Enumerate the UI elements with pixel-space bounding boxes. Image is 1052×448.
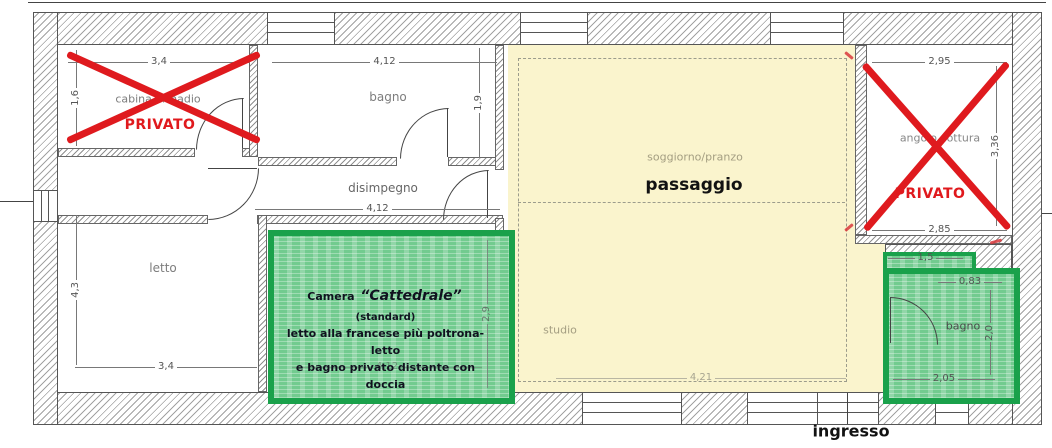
partition-bagno-bottom-left bbox=[258, 157, 397, 166]
window-left bbox=[34, 190, 57, 222]
entry-door-opening bbox=[817, 393, 879, 424]
scan-top-line bbox=[28, 2, 1046, 3]
dim-bagno-small-height: 2,0 bbox=[984, 290, 996, 375]
dim-bagno-width: 4,12 bbox=[272, 56, 497, 68]
dim-bagno-small-width: 2,05 bbox=[893, 373, 995, 385]
dim-letto-width: 3,4 bbox=[75, 361, 257, 373]
room-label-letto: letto bbox=[149, 261, 176, 275]
window-bottom-1 bbox=[582, 393, 682, 424]
camera-cattedrale-note: Camera “Cattedrale” (standard) letto all… bbox=[283, 286, 488, 393]
window-top-2 bbox=[520, 13, 588, 44]
camera-note-line1: Camera “Cattedrale” (standard) bbox=[283, 286, 488, 325]
dim-disimpegno-width: 4,12 bbox=[255, 203, 500, 215]
room-label-studio: studio bbox=[543, 324, 577, 337]
partition-cottura-left bbox=[855, 45, 867, 235]
annotation-privato-left: PRIVATO bbox=[125, 117, 196, 133]
dim-bagno-small-notch-width: 1,5 bbox=[888, 252, 963, 264]
window-top-1 bbox=[267, 13, 335, 44]
room-label-disimpegno: disimpegno bbox=[348, 181, 418, 195]
room-label-bagno-top: bagno bbox=[369, 90, 407, 104]
camera-note-line2: letto alla francese più poltrona-letto bbox=[283, 325, 488, 359]
partition-cottura-bottom bbox=[855, 235, 1012, 244]
right-sill-line bbox=[1042, 213, 1052, 214]
floor-plan: 3,4 1,6 4,12 1,9 4,12 3,4 4,3 4,12 2,9 2… bbox=[0, 0, 1052, 448]
dim-cottura-width-bottom: 2,85 bbox=[872, 224, 1007, 236]
annotation-passaggio: passaggio bbox=[645, 175, 742, 195]
partition-cabina-bottom-left bbox=[58, 148, 195, 157]
passage-dashed-midline bbox=[518, 202, 845, 203]
dim-bagno-small-offset: 0,83 bbox=[938, 276, 1002, 288]
dim-bagno-height: 1,9 bbox=[473, 48, 485, 158]
door-arc-bagno bbox=[400, 108, 449, 159]
window-bottom-2 bbox=[747, 393, 819, 424]
passage-highlight-corridor bbox=[855, 244, 885, 392]
room-label-soggiorno: soggiorno/pranzo bbox=[647, 151, 743, 164]
annotation-privato-right: PRIVATO bbox=[895, 186, 966, 202]
annotation-ingresso: ingresso bbox=[812, 422, 889, 441]
room-label-bagno-small: bagno bbox=[946, 320, 980, 333]
dim-studio-width: 4,21 bbox=[556, 372, 846, 384]
dim-cottura-height: 3,36 bbox=[990, 66, 1002, 226]
door-arc-disimpegno-left bbox=[208, 168, 259, 220]
entry-door-axis bbox=[847, 393, 848, 424]
dim-cottura-width-top: 2,95 bbox=[872, 56, 1007, 68]
camera-note-line3: e bagno privato distante con doccia bbox=[283, 359, 488, 393]
dim-letto-height: 4,3 bbox=[70, 215, 82, 365]
left-sill-line bbox=[0, 201, 33, 202]
window-top-3 bbox=[770, 13, 844, 44]
partition-letto-camera bbox=[258, 215, 267, 392]
